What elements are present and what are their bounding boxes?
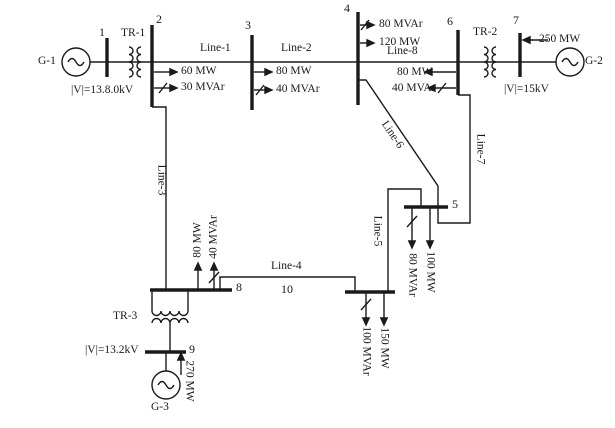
line-3-label: Line-3 — [155, 165, 168, 196]
line-5-label: Line-5 — [371, 216, 384, 247]
one-line-diagram: G-1 |V|=13.8.0kV TR-1 G-2 |V|=15kV 250 M… — [0, 0, 615, 428]
transformer-tr2-label: TR-2 — [473, 26, 497, 39]
bus2-load-mvar-label: 30 MVAr — [181, 81, 225, 94]
bus5-load-arrows — [407, 207, 433, 248]
bus5-load-mvar-label: 80 MVAr — [406, 253, 419, 297]
bus8-load-mvar-label: 40 MVAr — [208, 215, 221, 259]
bus2-load-arrows — [154, 69, 177, 93]
line-1-label: Line-1 — [200, 42, 231, 55]
line-4-label: Line-4 — [271, 260, 302, 273]
g2-voltage-label: |V|=15kV — [504, 83, 549, 96]
bus-4-number: 4 — [344, 2, 350, 15]
sine-icon — [158, 382, 174, 389]
bus4-load-arrows — [360, 20, 374, 46]
bus3-load-arrows — [254, 69, 272, 95]
generator-g1-symbol — [62, 48, 90, 76]
bus-10-number: 10 — [281, 283, 293, 296]
generator-g2-label: G-2 — [585, 55, 603, 68]
bus10-load-mvar-label: 100 MVAr — [360, 326, 373, 375]
transformer-tr3-symbol — [152, 290, 188, 352]
line-7-label: Line-7 — [474, 134, 487, 165]
bus10-load-arrows — [361, 292, 387, 325]
bus-bars — [107, 12, 520, 352]
bus5-load-mw-label: 100 MW — [424, 251, 437, 292]
bus-5-number: 5 — [452, 198, 458, 211]
g2-power-label: 250 MW — [539, 33, 580, 46]
sine-icon — [68, 59, 84, 66]
transformer-tr3-label: TR-3 — [113, 310, 137, 323]
generator-g2-symbol — [556, 48, 584, 76]
bus6-load-mvar-label: 40 MVAr — [392, 82, 436, 95]
generator-g3-symbol — [152, 352, 180, 399]
bus8-load-mw-label: 80 MW — [192, 222, 205, 257]
line-3-path — [152, 107, 166, 290]
bus10-load-mw-label: 150 MW — [378, 327, 391, 368]
bus8-load-arrows — [195, 263, 219, 290]
sine-icon — [562, 59, 578, 66]
bus-2-number: 2 — [156, 13, 162, 26]
generator-g3-label: G-3 — [151, 401, 169, 414]
bus-6-number: 6 — [447, 15, 453, 28]
bus-3-number: 3 — [245, 19, 251, 32]
bus4-load-mw-label: 120 MW — [379, 36, 420, 49]
bus4-load-mvar-label: 80 MVAr — [379, 18, 423, 31]
line-2-label: Line-2 — [281, 42, 312, 55]
bus3-load-mw-label: 80 MW — [276, 65, 311, 78]
bus-7-number: 7 — [513, 14, 519, 27]
transformer-tr1-label: TR-1 — [121, 27, 145, 40]
bus3-load-mvar-label: 40 MVAr — [276, 83, 320, 96]
bus-9-number: 9 — [189, 343, 195, 356]
g1-voltage-label: |V|=13.8.0kV — [71, 84, 133, 97]
g3-voltage-label: |V|=13.2kV — [85, 344, 139, 357]
bus2-load-mw-label: 60 MW — [181, 65, 216, 78]
bus6-load-mw-label: 80 MW — [397, 66, 432, 79]
generator-g1-label: G-1 — [38, 55, 56, 68]
bus-1-number: 1 — [99, 26, 105, 39]
bus-8-number: 8 — [236, 281, 242, 294]
g3-power-label: 270 MW — [183, 360, 196, 401]
